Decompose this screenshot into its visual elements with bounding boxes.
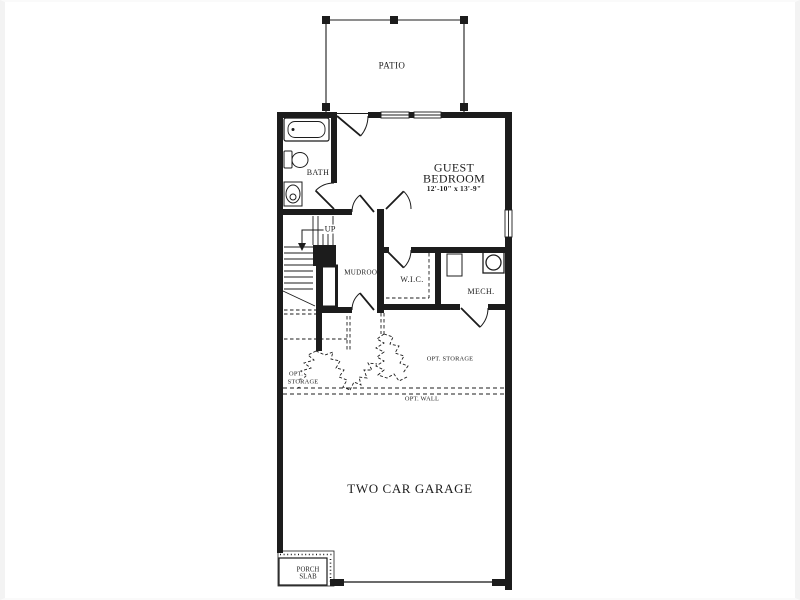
- door-swing-arcs: [316, 116, 488, 327]
- mech-label: MECH.: [467, 288, 494, 296]
- floor-plan-drawing: [0, 0, 800, 600]
- opt-storage-right-label: OPT. STORAGE: [427, 357, 474, 364]
- water-heater-icon: [483, 252, 504, 273]
- opt-wall-dashed-line: [283, 388, 505, 394]
- bathtub-icon: [284, 118, 329, 141]
- floor-plan-page: PATIO GUEST BEDROOM 12'-10" x 13'-9" BAT…: [0, 0, 800, 600]
- porch-slab-label-line2: SLAB: [299, 573, 316, 580]
- bath-label: BATH: [307, 169, 330, 177]
- interior-walls: [277, 112, 512, 351]
- mudroom-label: MUDROOM: [344, 269, 383, 276]
- opt-storage-left-label-line1: OPT.: [288, 372, 304, 379]
- wic-label: W.I.C.: [400, 276, 423, 284]
- opt-storage-left-label-line2: STORAGE: [287, 380, 320, 387]
- guest-bedroom-dimensions: 12'-10" x 13'-9": [427, 185, 481, 193]
- utility-fixture: [447, 254, 462, 276]
- garage-label: TWO CAR GARAGE: [347, 482, 472, 496]
- toilet-icon: [284, 151, 308, 168]
- opt-wall-label: OPT. WALL: [404, 397, 440, 404]
- up-label: UP: [324, 225, 337, 234]
- sink-icon: [284, 182, 302, 206]
- under-stair-closet: [322, 266, 337, 307]
- patio-label: PATIO: [379, 61, 406, 70]
